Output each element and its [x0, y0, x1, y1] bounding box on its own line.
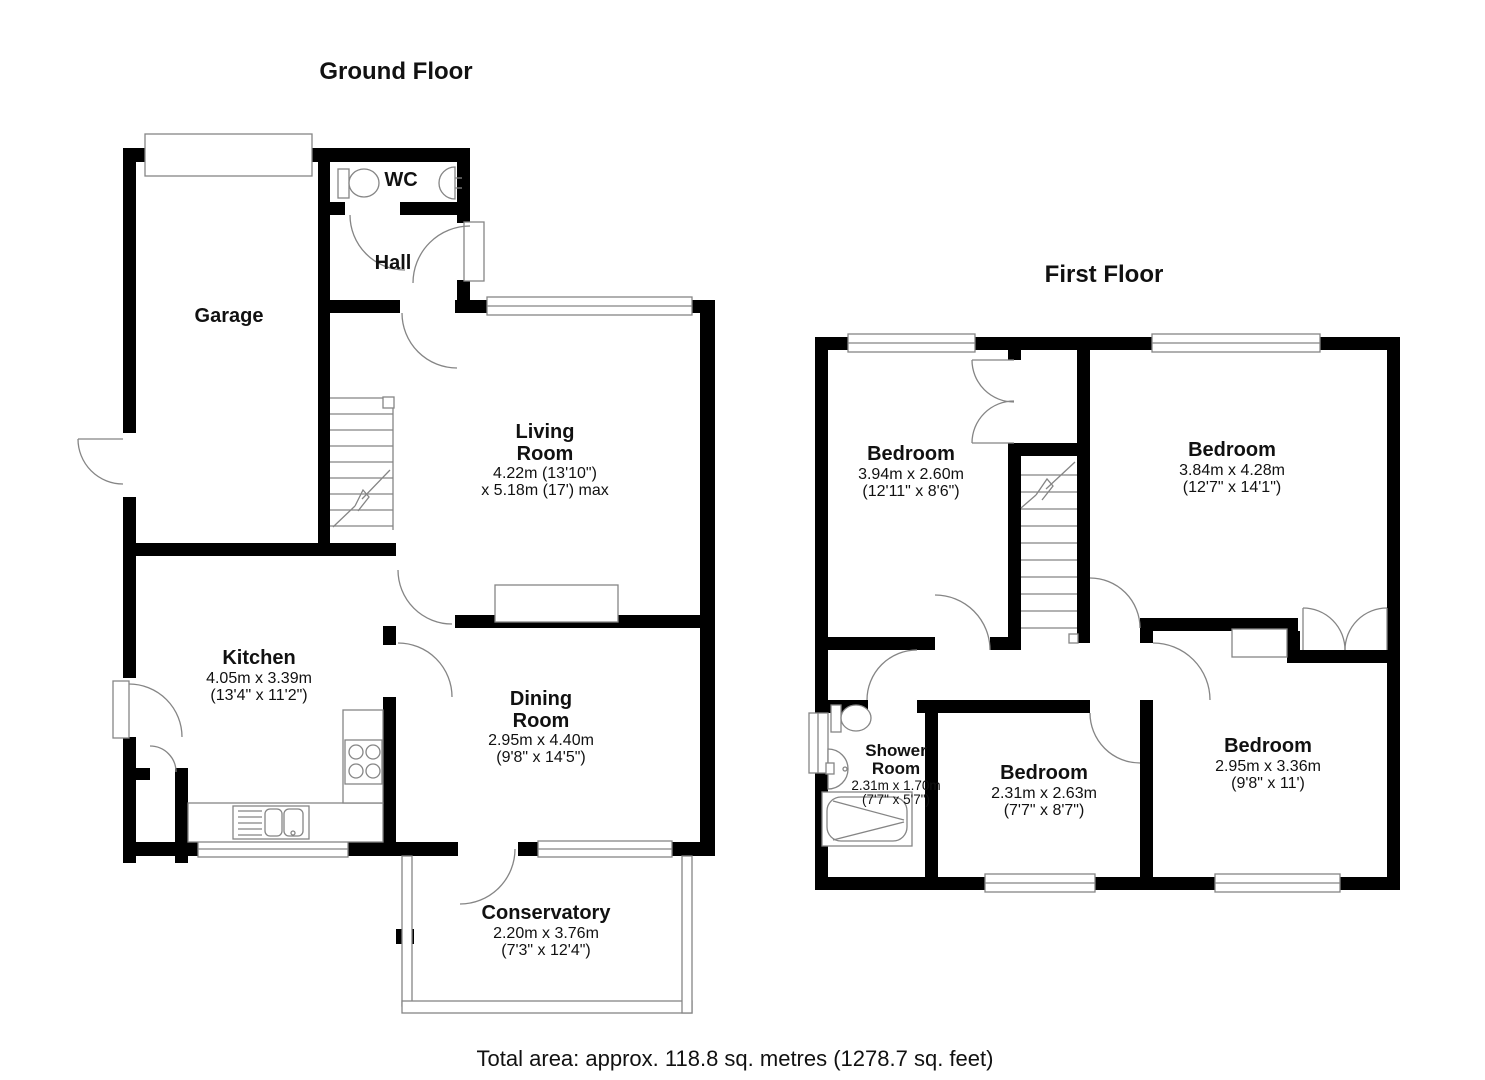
room-label-dining-room: Dining Room 2.95m x 4.40m (9'8" x 14'5")	[488, 689, 594, 767]
first-stairs-icon	[1021, 462, 1078, 643]
kitchen-window	[198, 841, 348, 857]
pantry-door-arc	[150, 746, 176, 772]
garage-door	[145, 134, 312, 176]
bedroom-tl-window	[848, 334, 975, 352]
garage-side-door-arc	[78, 439, 123, 484]
room-label-bedroom-top-right: Bedroom 3.84m x 4.28m (12'7" x 14'1")	[1179, 440, 1285, 496]
bedroom-tl-door-arc	[935, 595, 990, 650]
shower-toilet-icon	[831, 705, 871, 732]
bedroom-br-door-arc	[1153, 643, 1210, 700]
wardrobe-double-doors	[1303, 608, 1387, 650]
front-door-arc	[413, 226, 470, 283]
ground-floor-title: Ground Floor	[319, 58, 472, 86]
room-label-bedroom-top-left: Bedroom 3.94m x 2.60m (12'11" x 8'6")	[858, 444, 964, 500]
room-label-wc: WC	[384, 170, 417, 192]
bedroom-tr-door-arc	[1090, 578, 1140, 628]
room-label-bedroom-bottom-middle: Bedroom 2.31m x 2.63m (7'7" x 8'7")	[991, 763, 1097, 819]
wc-toilet-icon	[338, 169, 379, 198]
kitchen-sink-icon	[233, 806, 309, 839]
room-label-hall: Hall	[375, 253, 412, 275]
ground-stairs-icon	[330, 397, 394, 530]
hall-living-door-arc	[402, 313, 457, 368]
room-label-bedroom-bottom-right: Bedroom 2.95m x 3.36m (9'8" x 11')	[1215, 736, 1321, 792]
kitchen-living-door-arc	[398, 570, 452, 624]
first-floor-title: First Floor	[1045, 261, 1164, 289]
shower-sink-icon	[826, 749, 848, 789]
room-label-shower-room: Shower Room 2.31m x 1.70m (7'7" x 5'7")	[851, 742, 940, 808]
hob-icon	[345, 740, 382, 784]
room-label-kitchen: Kitchen 4.05m x 3.39m (13'4" x 11'2")	[206, 648, 312, 704]
cupboard-double-doors	[972, 360, 1014, 443]
kitchen-exterior-door	[113, 681, 129, 738]
kitchen-dining-door-arc	[398, 643, 452, 697]
ground-door-arcs	[78, 215, 515, 904]
sideboard-icon	[495, 585, 618, 622]
conservatory-door-arc	[460, 849, 515, 904]
floorplan-page: Ground Floor First Floor Garage WC Hall …	[0, 0, 1485, 1080]
bedroom-bm-window	[985, 874, 1095, 892]
room-label-conservatory: Conservatory 2.20m x 3.76m (7'3" x 12'4"…	[482, 903, 611, 959]
total-area-text: Total area: approx. 118.8 sq. metres (12…	[477, 1046, 994, 1072]
room-label-living-room: Living Room 4.22m (13'10") x 5.18m (17')…	[481, 422, 609, 500]
dining-window	[538, 841, 672, 857]
bedroom-bm-door-arc	[1090, 713, 1140, 763]
room-label-garage: Garage	[195, 306, 264, 328]
kitchen-door-arc	[129, 684, 182, 737]
bedroom-tr-window	[1152, 334, 1320, 352]
first-floor-plan	[809, 334, 1400, 892]
floorplan-drawing	[0, 0, 1485, 1080]
airing-cupboard	[1232, 629, 1287, 657]
front-door	[464, 222, 484, 281]
shower-door-arc	[867, 650, 917, 700]
bedroom-br-window	[1215, 874, 1340, 892]
living-window	[487, 297, 692, 315]
shower-window	[809, 713, 828, 773]
